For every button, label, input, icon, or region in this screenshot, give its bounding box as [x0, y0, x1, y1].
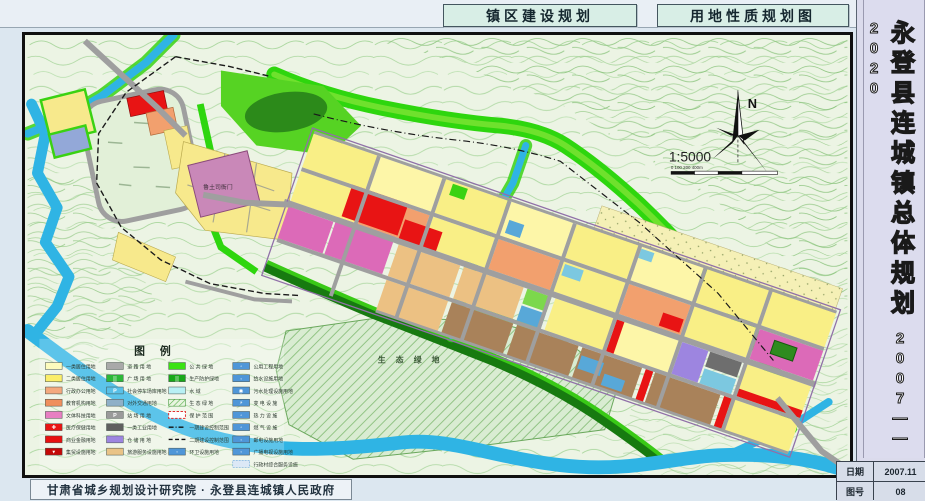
planning-map: 生 态 绿 地 鲁土司衙门	[22, 32, 853, 478]
legend-item-label: 一类居住用地	[66, 363, 96, 370]
legend-item-label: 保 护 范 围	[189, 412, 213, 419]
legend-item-label: 给水设施用地	[254, 376, 284, 383]
legend-item-label: 二类居住用地	[66, 376, 96, 383]
legend-item-label: 生 态 绿 地	[189, 400, 213, 407]
legend-item-label: 污水处理设施用地	[254, 388, 293, 395]
legend-item-label: 教育机构用地	[66, 400, 96, 407]
credit-text: 甘肃省城乡规划设计研究院 · 永登县连城镇人民政府	[47, 482, 335, 498]
eco-area-label: 生 态 绿 地	[378, 355, 444, 365]
legend-item-label: 商业金融用地	[66, 437, 96, 444]
sheet-no-value: 08	[874, 482, 925, 501]
svg-text:P: P	[113, 389, 117, 395]
svg-text:◦: ◦	[240, 437, 242, 443]
legend-item-label: 医疗保健用地	[66, 425, 96, 432]
legend-item-label: 环卫设施用地	[189, 449, 219, 456]
map-title-right: 用地性质规划图	[657, 4, 849, 27]
legend-item-label: 文体科技用地	[66, 412, 96, 419]
map-title-left: 镇区建设规划	[443, 4, 637, 27]
legend-item-label: 对外交通用地	[127, 400, 157, 407]
legend-title: 图 例	[134, 344, 176, 358]
date-label: 日期	[837, 462, 873, 481]
svg-text:◦: ◦	[240, 425, 242, 431]
title-block-table: 日期 2007.11 图号 08	[836, 461, 925, 500]
legend-item-label: 二期建设控制范围	[189, 437, 228, 444]
svg-text:⚡: ⚡	[239, 400, 243, 407]
legend-item-label: 站 场 用 地	[127, 412, 151, 419]
legend-item-label: 公 共 绿 地	[189, 363, 213, 370]
legend-item-label: 燃 气 设 施	[254, 425, 278, 432]
svg-text:◉: ◉	[239, 389, 244, 395]
legend-item-label: 水 域	[189, 388, 200, 395]
svg-text:◦: ◦	[240, 413, 242, 419]
legend-item-label: 邮电设施用地	[254, 437, 284, 444]
legend-item-label: 行政村综合服务设施	[254, 461, 298, 468]
svg-text:▒: ▒	[113, 375, 117, 382]
date-value: 2007.11	[874, 462, 925, 481]
scale-ticks: 0 100 200 400m	[671, 165, 703, 170]
legend-item-label: 道 路 用 地	[127, 363, 151, 370]
svg-text:P: P	[113, 413, 117, 419]
north-label: N	[748, 96, 757, 111]
map-legend: 图 例 一类居住用地二类居住用地行政办公用地教育机构用地文体科技用地✚医疗保健用…	[39, 339, 297, 469]
legend-item-label: 广 场 用 地	[127, 376, 151, 383]
svg-text:◦: ◦	[176, 450, 178, 456]
legend-item-label: 集贸设施用地	[66, 449, 96, 456]
drawing-title: 永登县连城镇总体规划	[887, 20, 914, 320]
svg-text:◦: ◦	[240, 364, 242, 370]
legend-items: 一类居住用地二类居住用地行政办公用地教育机构用地文体科技用地✚医疗保健用地商业金…	[45, 363, 298, 469]
svg-text:◦: ◦	[240, 376, 242, 382]
drawing-title-vertical: 永登县连城镇总体规划2007——2020	[865, 20, 918, 460]
svg-text:✚: ✚	[51, 425, 56, 431]
map-title-right-label: 用地性质规划图	[690, 6, 816, 26]
map-title-left-label: 镇区建设规划	[486, 6, 594, 26]
svg-text:▒: ▒	[175, 375, 179, 382]
legend-item-label: 仓 储 用 地	[127, 437, 151, 444]
legend-item-label: 旅游服务设施用地	[127, 449, 166, 456]
sheet-no-label: 图号	[837, 482, 873, 501]
legend-item-label: 社会停车场库用地	[127, 388, 166, 395]
legend-item-label: 变 电 设 施	[254, 400, 278, 407]
legend-item-label: 热 力 设 施	[254, 412, 278, 419]
svg-text:▾: ▾	[52, 450, 55, 456]
legend-item-label: 一类工业用地	[127, 425, 157, 432]
right-sidebar: 永登县连城镇总体规划2007——2020	[856, 0, 925, 500]
map-canvas: 生 态 绿 地 鲁土司衙门	[25, 35, 850, 475]
legend-item-label: 公用工程用地	[254, 363, 284, 370]
heritage-label: 鲁土司衙门	[203, 183, 233, 191]
legend-item-label: 行政办公用地	[66, 388, 96, 395]
legend-item-label: 生产防护绿地	[189, 376, 219, 383]
credit-box: 甘肃省城乡规划设计研究院 · 永登县连城镇人民政府	[30, 479, 352, 500]
svg-text:◦: ◦	[240, 450, 242, 456]
scale-label: 1:5000	[669, 148, 712, 164]
legend-item-label: 广播电视设施用地	[254, 449, 293, 456]
legend-item-label: 一期建设控制范围	[189, 425, 228, 432]
